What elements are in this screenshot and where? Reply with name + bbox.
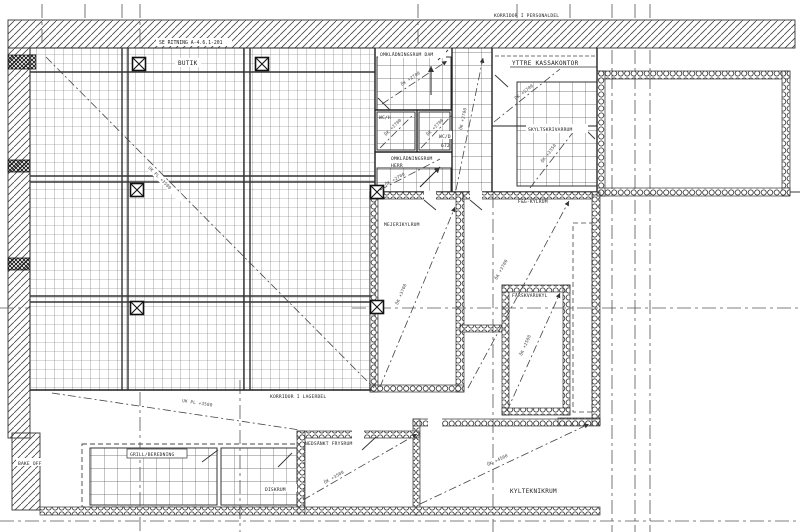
label-bake-off: BAKE OFF [18,461,42,467]
level-farsk: ÖK +2500 [517,333,533,356]
level-fg: ÖK +3700 [493,258,510,281]
column-marker [371,301,384,314]
omkl-dam-floor [377,57,451,110]
label-wc-d-number: 672 [441,143,450,149]
column-marker [131,302,144,315]
level-kylteknik: ÖK +4500 [486,452,509,468]
column-marker [131,184,144,197]
label-grill-beredning: GRILL/BEREDNING [130,452,175,458]
label-omkladningsrum-herr-line2: HERR [391,163,403,169]
label-mejerikylrum: MEJERIKYLRUM [384,222,420,228]
column-marker [256,58,269,71]
level-mejeri: ÖK +3700 [393,282,408,305]
kassa-skylt-floor [517,82,597,186]
wall-pier [8,258,30,270]
label-wc-d: WC/D [439,134,451,140]
column-marker [133,58,146,71]
shaft-dashed-outline [573,223,592,412]
label-farskvarukyl: FÄRSKVARUKYL [512,292,548,299]
label-korridor-personaldel: KORRIDOR I PERSONALDEL [494,13,559,19]
column-marker [371,186,384,199]
label-nedsankt-frysrum: NEDSÄNKT FRYSRUM [305,440,352,447]
level-frys: ÖK +3500 [323,468,346,485]
label-yttre-kassakontor: YTTRE KASSAKONTOR [512,60,579,67]
label-butik: BUTIK [178,60,198,67]
label-wc-h: WC/H [379,115,391,121]
omkl-herr-floor [377,168,451,192]
level-lager: UK PL +3500 [182,398,213,408]
label-fg-kylrum: F&G-KYLRUM [518,199,548,205]
label-korridor-lagerdel: KORRIDOR I LAGERDEL [270,394,326,400]
wall-pier [8,160,30,172]
floor-plan-sheet: SE RITNING A-4.6.1-201 KORRIDOR I PERSON… [0,0,800,532]
floor-plan-drawing: SE RITNING A-4.6.1-201 KORRIDOR I PERSON… [0,0,800,532]
left-wall-hatch [8,48,30,438]
label-omkladningsrum-herr-line1: OMKLÄDNINGSRUM [391,155,433,162]
stair-strip-floor [452,48,492,192]
label-skyltskrivarrum: SKYLTSKRIVARRUM [528,127,573,133]
bake-off-wall-hatch [12,433,40,510]
diskrum-floor [221,448,297,505]
label-diskrum: DISKRUM [265,487,286,493]
label-kylteknikrum: KYLTEKNIKRUM [510,488,557,495]
drawing-reference-note: SE RITNING A-4.6.1-201 [159,40,223,46]
butik-ceiling-grid [30,48,375,390]
top-corridor-wall-hatch [8,20,795,48]
label-omkladningsrum-dam: OMKLÄDNINGSRUM DAM [380,51,433,58]
